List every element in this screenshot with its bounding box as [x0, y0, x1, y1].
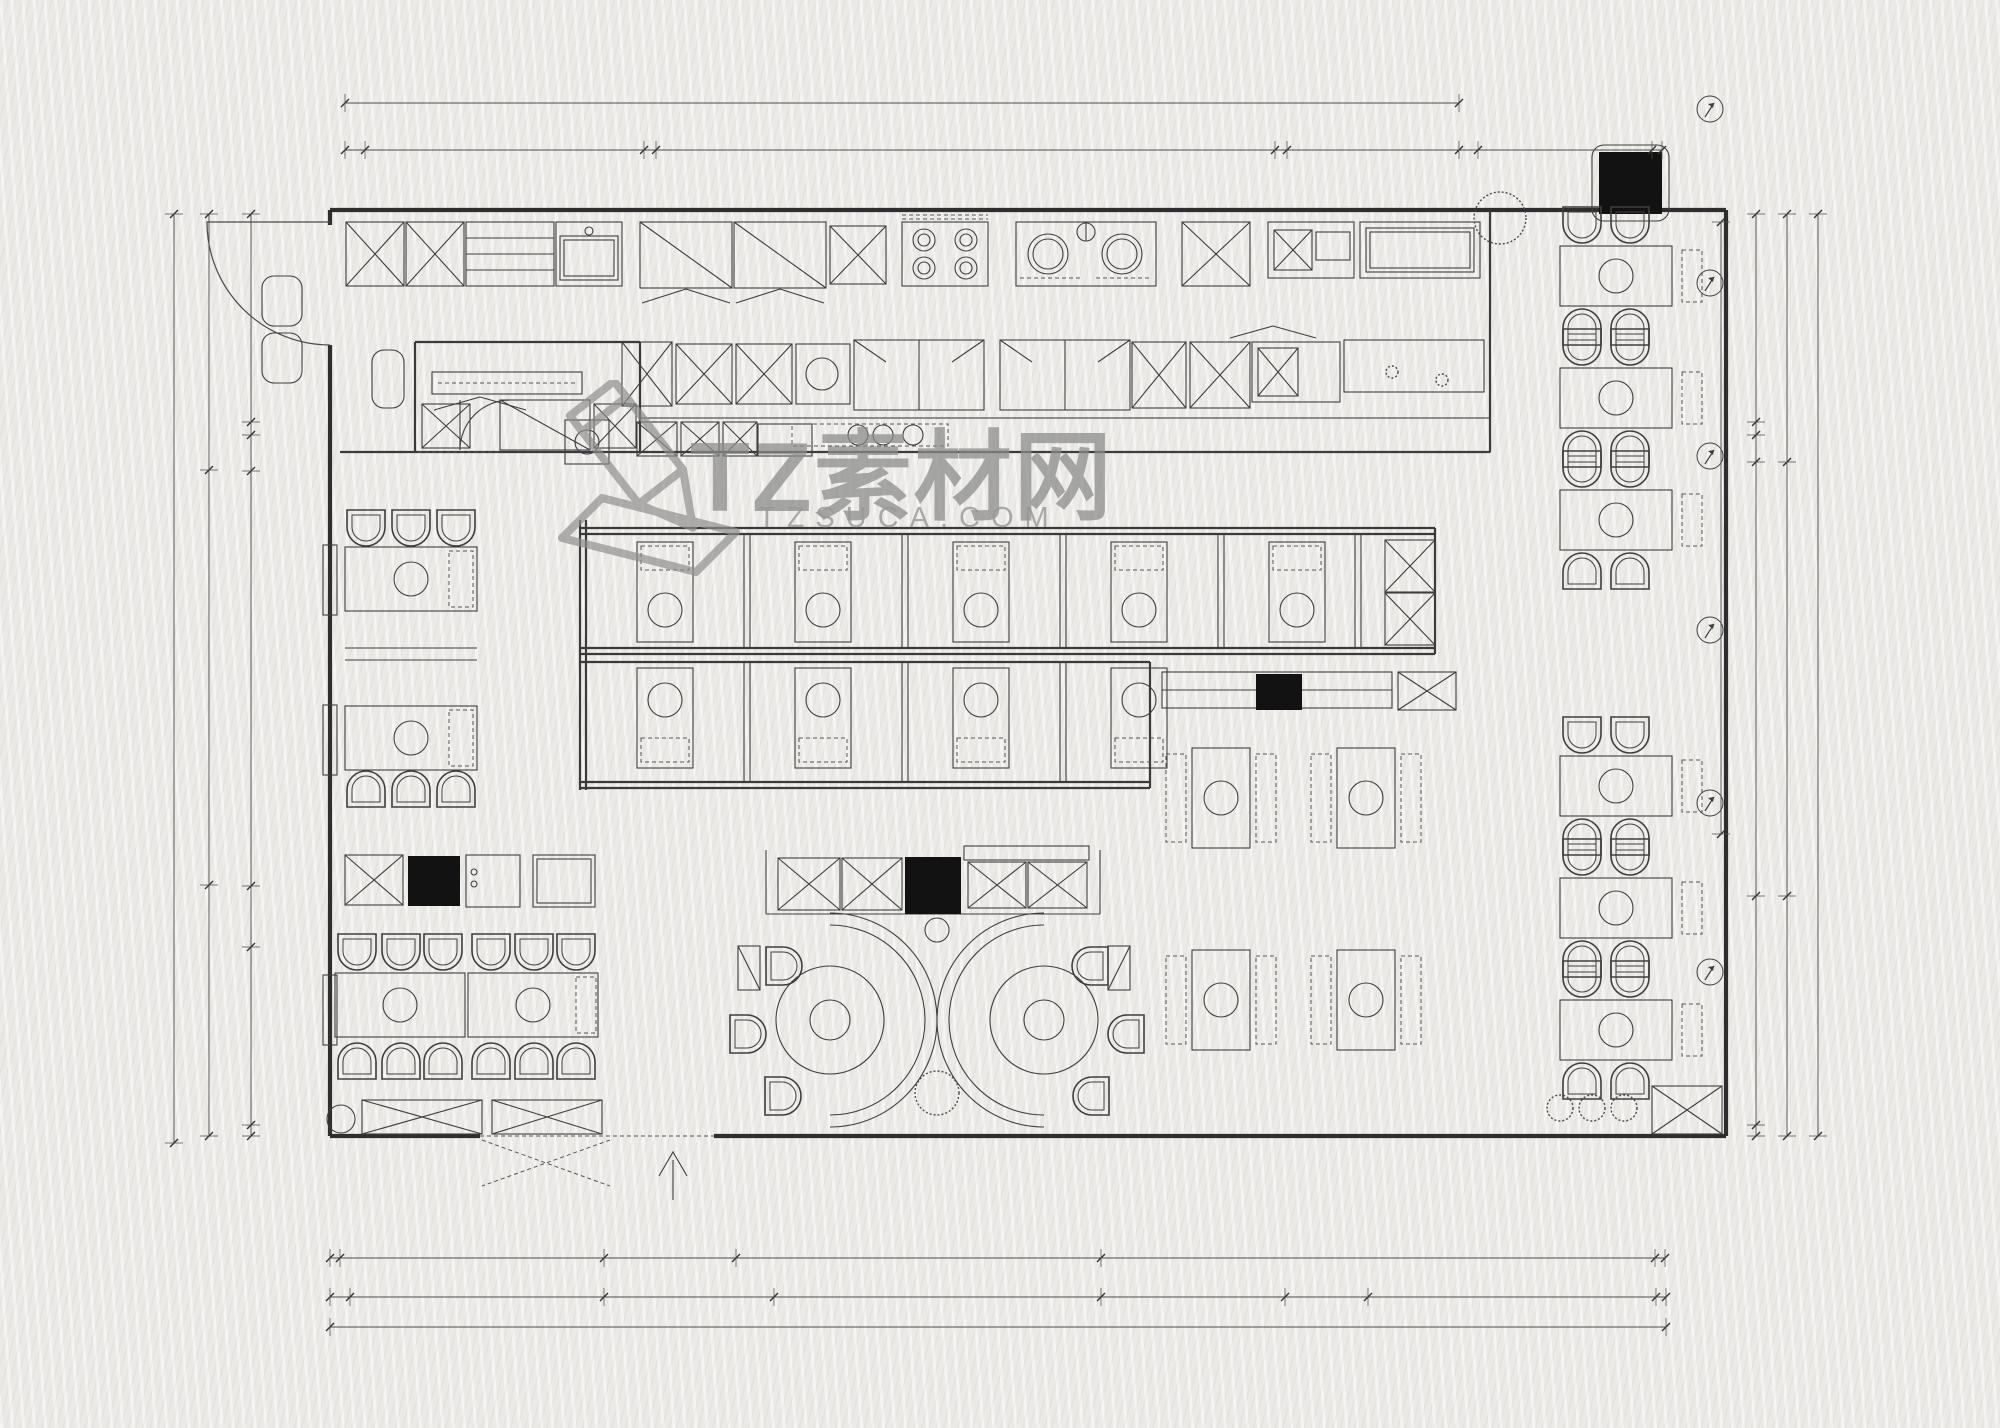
- table-seat-circle: [1122, 593, 1156, 627]
- chair-icon: [1108, 1015, 1144, 1053]
- bench-dashed-rect: [1682, 494, 1702, 546]
- detail-line: [854, 340, 886, 362]
- floor-plan-drawing: [0, 0, 2000, 1428]
- equipment-rect: [902, 222, 988, 286]
- round-booth-arcs: [830, 913, 1044, 1127]
- floor-plan-canvas: TZ素材网 TZSUCA.COM: [0, 0, 2000, 1428]
- bench-dashed-rect: [641, 738, 689, 762]
- bench-dashed-rect: [576, 977, 596, 1033]
- equipment-rect: [1560, 1000, 1672, 1060]
- rounded-bench: [372, 350, 404, 408]
- table-seat-circle: [648, 593, 682, 627]
- rounded-bench: [262, 276, 302, 326]
- chair-icon: [1563, 553, 1601, 589]
- equipment-rect: [1560, 246, 1672, 306]
- bench-dashed-rect: [1401, 754, 1421, 842]
- equipment-rect: [345, 547, 477, 611]
- circle-shape: [810, 1000, 850, 1040]
- chair-icon: [557, 1043, 595, 1079]
- table-seat-circle: [1599, 769, 1633, 803]
- burner-circle-inner: [918, 262, 930, 274]
- bench-dashed-rect: [1682, 1004, 1702, 1056]
- burner-circle: [955, 257, 977, 279]
- bench-dashed-rect: [1311, 956, 1331, 1044]
- chair-icon: [1563, 717, 1601, 753]
- equipment-rect: [964, 846, 1089, 860]
- bench-dashed-rect: [799, 546, 847, 570]
- chair-icon: [347, 771, 385, 807]
- chair-icon: [1563, 839, 1601, 875]
- equipment-rect: [1337, 950, 1395, 1050]
- burner-circle-inner: [1033, 239, 1063, 269]
- equipment-rect: [565, 420, 609, 464]
- bench-dashed-rect: [1256, 956, 1276, 1044]
- bench-dashed-rect: [1401, 956, 1421, 1044]
- chair-icon: [1611, 309, 1649, 345]
- door-peak: [642, 289, 686, 303]
- chair-icon: [392, 510, 430, 546]
- table-seat-circle: [964, 683, 998, 717]
- table-seat-circle: [1280, 593, 1314, 627]
- chair-icon: [1611, 553, 1649, 589]
- chair-icon: [766, 947, 802, 985]
- door-peak: [736, 289, 780, 303]
- equipment-rect: [1316, 232, 1350, 260]
- chair-icon: [1611, 941, 1649, 977]
- table-seat-circle: [1349, 983, 1383, 1017]
- table-seat-circle: [806, 683, 840, 717]
- bench-dashed-rect: [799, 738, 847, 762]
- table-seat-circle: [1204, 781, 1238, 815]
- door-peak: [1230, 326, 1273, 338]
- circle-shape: [925, 918, 949, 942]
- circle-shape: [471, 881, 477, 887]
- door-peak: [1273, 326, 1316, 338]
- detail-line: [952, 340, 984, 362]
- table-seat-circle: [806, 593, 840, 627]
- chair-icon: [1611, 1063, 1649, 1099]
- table-seat-circle: [394, 562, 428, 596]
- plant-scribble: [1386, 366, 1398, 378]
- detail-line: [500, 400, 590, 450]
- chair-icon: [392, 771, 430, 807]
- bench-dashed-rect: [1311, 754, 1331, 842]
- table-seat-circle: [516, 988, 550, 1022]
- walls: [330, 210, 1726, 1136]
- chair-icon: [765, 1077, 801, 1115]
- table-seat-circle: [1599, 891, 1633, 925]
- chair-icon: [437, 510, 475, 546]
- equipment-rect: [1192, 748, 1250, 848]
- equipment-rect-inner: [537, 859, 591, 903]
- detail-line: [1108, 946, 1130, 990]
- chair-icon: [515, 1043, 553, 1079]
- table-seat-circle: [1599, 259, 1633, 293]
- equipment-rect: [1366, 228, 1474, 272]
- chair-icon: [1563, 309, 1601, 345]
- equipment-rect: [1344, 340, 1484, 392]
- bench-dashed-rect: [1273, 546, 1321, 570]
- solid-black-block: [408, 856, 460, 906]
- chair-icon: [1611, 839, 1649, 875]
- equipment-rect-inner: [564, 240, 614, 276]
- chair-icon: [1563, 941, 1601, 977]
- equipment-rect: [560, 236, 618, 280]
- bench-dashed-rect: [449, 551, 473, 607]
- table-seat-circle: [1349, 781, 1383, 815]
- table-seat-circle: [964, 593, 998, 627]
- chair-icon: [437, 771, 475, 807]
- bench-dashed-rect: [957, 546, 1005, 570]
- circle-shape: [806, 358, 838, 390]
- chair-icon: [1611, 207, 1649, 243]
- chair-icon: [1611, 431, 1649, 467]
- circle-shape: [848, 425, 868, 445]
- detail-line: [640, 222, 732, 288]
- bench-dashed-rect: [792, 424, 948, 446]
- detail-line: [1098, 340, 1130, 362]
- bench-dashed-rect: [1256, 754, 1276, 842]
- circle-shape: [903, 425, 923, 445]
- equipment-rect: [1560, 490, 1672, 550]
- chair-icon: [382, 934, 420, 970]
- chair-icon: [515, 934, 553, 970]
- solid-black-block: [1599, 152, 1662, 214]
- chair-icon: [1611, 717, 1649, 753]
- circle-shape: [471, 869, 477, 875]
- chair-icon: [347, 510, 385, 546]
- chair-icon: [1563, 207, 1601, 243]
- entrance-arrow-icon: [659, 1152, 687, 1200]
- burner-circle: [1102, 234, 1142, 274]
- bench-dashed-rect: [1115, 738, 1163, 762]
- table-seat-circle: [1204, 983, 1238, 1017]
- solid-black-block: [1256, 674, 1302, 710]
- chair-icon: [1611, 961, 1649, 997]
- table-seat-circle: [383, 988, 417, 1022]
- chair-icon: [1611, 451, 1649, 487]
- equipment-rect: [1560, 878, 1672, 938]
- plant-scribble: [1436, 374, 1448, 386]
- burner-circle-inner: [960, 262, 972, 274]
- chair-icon: [472, 934, 510, 970]
- chair-icon: [1563, 819, 1601, 855]
- chair-icon: [424, 934, 462, 970]
- chair-icon: [1563, 1063, 1601, 1099]
- equipment-rect: [335, 973, 465, 1037]
- table-seat-circle: [394, 721, 428, 755]
- bench-dashed-rect: [1166, 956, 1186, 1044]
- burner-circle: [913, 229, 935, 251]
- bench-dashed-rect: [449, 710, 473, 766]
- circle-shape: [873, 425, 893, 445]
- equipment-rect: [468, 973, 598, 1037]
- equipment-rect: [345, 706, 477, 770]
- table-seat-circle: [648, 683, 682, 717]
- circle-shape: [1024, 1000, 1064, 1040]
- furniture-layer: [262, 145, 1722, 1186]
- chair-icon: [730, 1015, 766, 1053]
- door-peak: [686, 289, 730, 303]
- table-seat-circle: [1599, 503, 1633, 537]
- chair-icon: [338, 1043, 376, 1079]
- chair-icon: [1563, 329, 1601, 365]
- solid-black-block: [905, 857, 961, 914]
- bench-dashed-rect: [1682, 372, 1702, 424]
- plant-scribble: [1474, 192, 1526, 244]
- bench-dashed-rect: [1115, 546, 1163, 570]
- equipment-rect: [640, 418, 1490, 452]
- equipment-rect: [1337, 748, 1395, 848]
- door-peak: [480, 397, 526, 410]
- bench-dashed-rect: [641, 546, 689, 570]
- bench-dashed-rect: [1166, 754, 1186, 842]
- equipment-rect: [1360, 222, 1480, 278]
- bench-dashed-rect: [957, 738, 1005, 762]
- bench-dashed-rect: [1682, 760, 1702, 812]
- burner-circle-inner: [960, 234, 972, 246]
- chair-icon: [1563, 451, 1601, 487]
- equipment-rect: [796, 344, 850, 404]
- chair-icon: [1073, 1077, 1109, 1115]
- burner-circle-inner: [1107, 239, 1137, 269]
- chair-icon: [424, 1043, 462, 1079]
- plant-scribble: [915, 1071, 959, 1115]
- detail-line: [738, 946, 760, 990]
- equipment-rect-inner: [1370, 232, 1470, 268]
- dimension-layer: [165, 94, 1827, 1336]
- table-seat-circle: [1599, 1013, 1633, 1047]
- burner-circle: [1028, 234, 1068, 274]
- chair-icon: [382, 1043, 420, 1079]
- equipment-rect: [1560, 756, 1672, 816]
- burner-circle: [913, 257, 935, 279]
- chair-icon: [557, 934, 595, 970]
- chair-icon: [338, 934, 376, 970]
- detail-line: [734, 222, 826, 288]
- chair-icon: [472, 1043, 510, 1079]
- chair-icon: [1611, 819, 1649, 855]
- circle-shape: [585, 227, 593, 235]
- equipment-rect: [1192, 950, 1250, 1050]
- detail-line: [1000, 340, 1032, 362]
- burner-circle: [955, 229, 977, 251]
- chair-icon: [1563, 431, 1601, 467]
- table-seat-circle: [1599, 381, 1633, 415]
- chair-icon: [1611, 329, 1649, 365]
- equipment-rect: [533, 855, 595, 907]
- equipment-rect: [1560, 368, 1672, 428]
- chair-icon: [1072, 947, 1108, 985]
- burner-circle-inner: [918, 234, 930, 246]
- chair-icon: [1563, 961, 1601, 997]
- bench-dashed-rect: [1682, 882, 1702, 934]
- door-peak: [780, 289, 824, 303]
